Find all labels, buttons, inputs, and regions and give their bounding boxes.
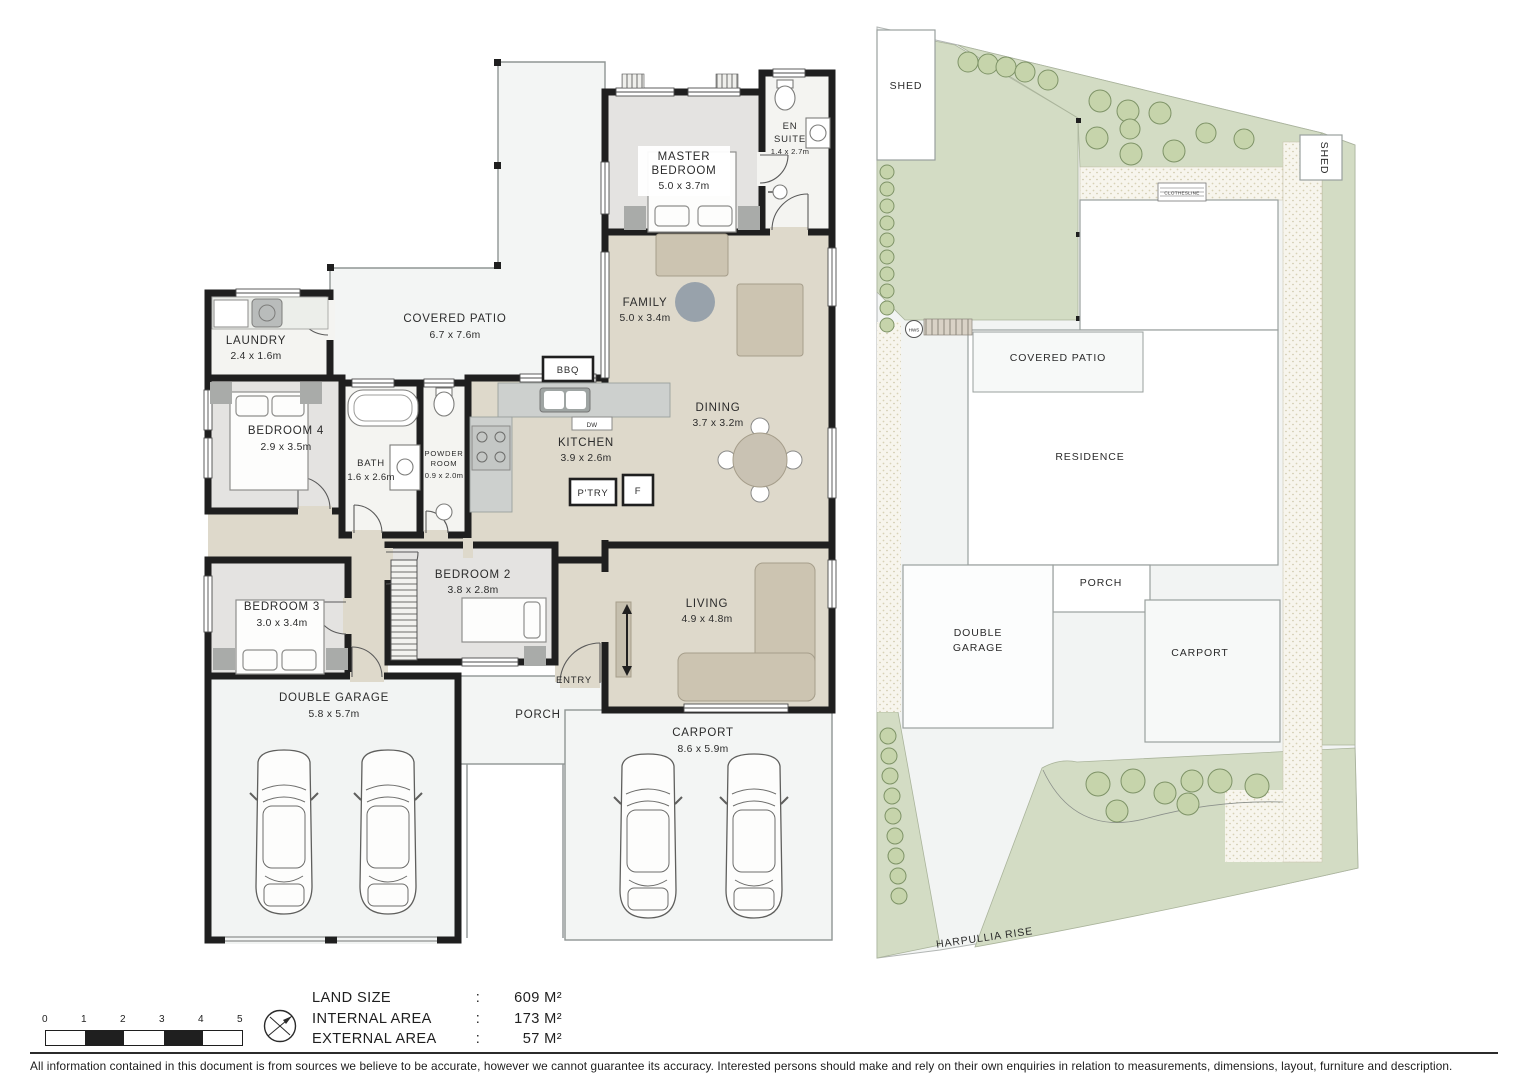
room-label: BATH [357, 458, 385, 469]
room-label: DINING [695, 402, 740, 414]
scale-tick: 1 [81, 1014, 87, 1025]
room-dims: 8.6 x 5.9m [677, 744, 728, 755]
scale-tick: 2 [120, 1014, 126, 1025]
site-label-shed: SHED [1318, 142, 1330, 175]
site-label-porch: PORCH [1080, 577, 1122, 589]
steps [924, 319, 972, 335]
entry-hall [555, 560, 605, 682]
area-label: INTERNAL AREA [312, 1011, 464, 1027]
room-label: LIVING [686, 598, 729, 610]
area-label: LAND SIZE [312, 990, 464, 1006]
residence-wing [1080, 200, 1278, 330]
feature-label-bbq: BBQ [557, 365, 579, 376]
floorplan-document: COVERED PATIO 6.7 x 7.6m MASTER BEDROOM … [0, 0, 1528, 1080]
room-label: BEDROOM 3 [244, 601, 320, 613]
rug [675, 282, 715, 322]
room-label: CARPORT [672, 727, 734, 739]
room-dims: 5.0 x 3.4m [619, 313, 670, 324]
clothesline-label: CLOTHESLINE [1164, 191, 1199, 196]
compass-icon [262, 1008, 298, 1044]
feature-label-pantry: P'TRY [578, 488, 609, 499]
disclaimer-text: All information contained in this docume… [30, 1059, 1510, 1073]
car [614, 754, 682, 918]
room-label: COVERED PATIO [403, 313, 506, 325]
gravel-path [877, 322, 901, 712]
room-label: BEDROOM [651, 165, 716, 177]
scale-tick: 3 [159, 1014, 165, 1025]
area-value: 57 M² [492, 1031, 562, 1047]
area-summary: LAND SIZE : 609 M² INTERNAL AREA : 173 M… [312, 988, 562, 1050]
area-row: LAND SIZE : 609 M² [312, 988, 562, 1009]
room-dims: 3.7 x 3.2m [692, 418, 743, 429]
site-label-garage: GARAGE [953, 642, 1003, 654]
room-label: BEDROOM 2 [435, 569, 511, 581]
grass-area [1322, 133, 1355, 745]
area-value: 173 M² [492, 1011, 562, 1027]
hws-label: HWS [909, 328, 920, 333]
room-label: DOUBLE GARAGE [279, 692, 389, 704]
hallway [348, 560, 388, 682]
laundry-fixtures [212, 297, 328, 329]
room-dims: 2.4 x 1.6m [230, 351, 281, 362]
room-label: BEDROOM 4 [248, 425, 324, 437]
scale-bar [45, 1030, 243, 1046]
room-label: MASTER [658, 151, 711, 163]
room-label: FAMILY [623, 297, 668, 309]
room-dims: 0.9 x 2.0m [425, 471, 463, 480]
room-dims: 6.7 x 7.6m [429, 330, 480, 341]
linen-cupboard [391, 560, 417, 660]
scale-tick: 4 [198, 1014, 204, 1025]
gravel-path [1283, 142, 1322, 862]
site-label-covered-patio: COVERED PATIO [1010, 352, 1107, 364]
area-separator: : [464, 1031, 492, 1047]
room-dims: 1.6 x 2.6m [347, 472, 394, 483]
area-separator: : [464, 990, 492, 1006]
area-label: EXTERNAL AREA [312, 1031, 464, 1047]
floor-plan: COVERED PATIO 6.7 x 7.6m MASTER BEDROOM … [195, 55, 855, 955]
feature-label-fridge: F [635, 486, 642, 497]
site-label-carport: CARPORT [1171, 647, 1228, 659]
scale-tick: 0 [42, 1014, 48, 1025]
car [720, 754, 788, 918]
site-label-garage: DOUBLE [954, 627, 1003, 639]
area-row: EXTERNAL AREA : 57 M² [312, 1029, 562, 1050]
scale-tick: 5 [237, 1014, 243, 1025]
area-value: 609 M² [492, 990, 562, 1006]
room-label: EN [783, 121, 798, 132]
car [354, 750, 422, 914]
room-label: ROOM [431, 459, 458, 468]
room-dims: 1.4 x 2.7m [771, 147, 809, 156]
room-dims: 3.0 x 3.4m [256, 618, 307, 629]
area-separator: : [464, 1011, 492, 1027]
room-dims: 3.9 x 2.6m [560, 453, 611, 464]
feature-label-dishwasher: DW [587, 422, 598, 429]
room-dims: 4.9 x 4.8m [681, 614, 732, 625]
site-carport [1145, 600, 1280, 742]
room-dims: 2.9 x 3.5m [260, 442, 311, 453]
hallway [208, 511, 342, 560]
room-dims: 3.8 x 2.8m [447, 585, 498, 596]
room-dims: 5.8 x 5.7m [308, 709, 359, 720]
site-label-shed: SHED [890, 80, 923, 92]
divider-line [30, 1052, 1498, 1054]
car [250, 750, 318, 914]
site-label-residence: RESIDENCE [1055, 451, 1124, 463]
gravel-path [1225, 790, 1283, 862]
shed-left [877, 30, 935, 160]
site-plan: CLOTHESLINE HWS [870, 20, 1360, 990]
room-dims: 5.0 x 3.7m [658, 181, 709, 192]
room-label: SUITE [774, 134, 806, 145]
room-label: POWDER [425, 449, 464, 458]
area-row: INTERNAL AREA : 173 M² [312, 1009, 562, 1030]
room-label: PORCH [515, 709, 561, 721]
room-label: KITCHEN [558, 437, 614, 449]
room-label: ENTRY [556, 675, 592, 686]
room-label: LAUNDRY [226, 335, 286, 347]
scale-bar-ticks: 0 1 2 3 4 5 [45, 1014, 241, 1028]
